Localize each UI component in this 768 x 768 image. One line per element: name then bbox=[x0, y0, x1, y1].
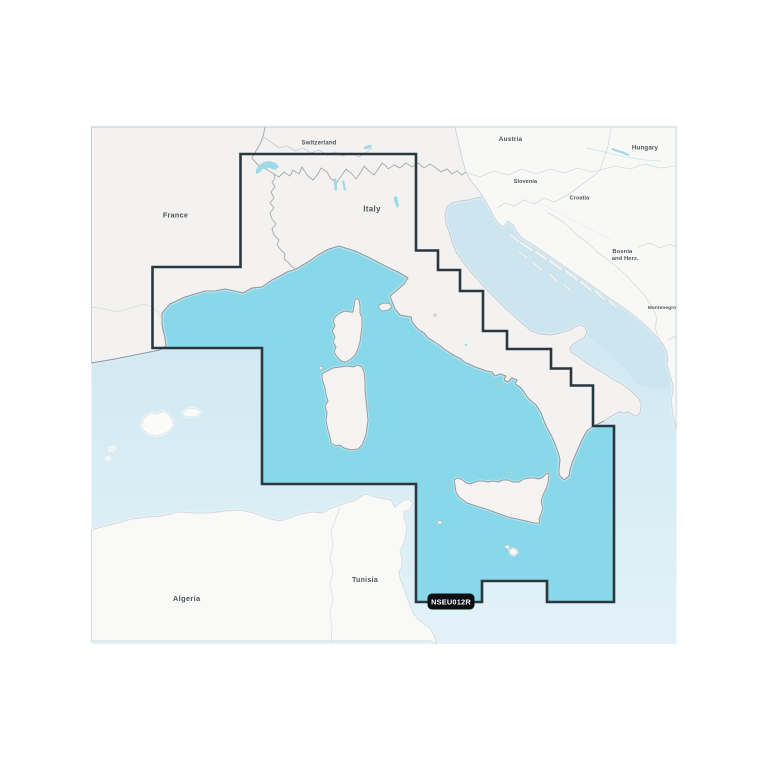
svg-text:Slovenia: Slovenia bbox=[514, 179, 538, 185]
svg-text:NSEU012R: NSEU012R bbox=[431, 597, 471, 606]
svg-text:Austria: Austria bbox=[499, 136, 523, 143]
svg-text:Bosnia: Bosnia bbox=[612, 249, 633, 255]
svg-text:France: France bbox=[163, 211, 188, 220]
svg-text:Switzerland: Switzerland bbox=[302, 140, 337, 146]
svg-text:Hungary: Hungary bbox=[632, 145, 659, 152]
svg-text:Montenegro: Montenegro bbox=[648, 305, 676, 311]
svg-text:and Herz.: and Herz. bbox=[612, 256, 639, 262]
svg-text:Algeria: Algeria bbox=[173, 594, 201, 603]
svg-text:Italy: Italy bbox=[363, 205, 381, 214]
svg-text:Tunisia: Tunisia bbox=[352, 577, 378, 584]
svg-text:Croatia: Croatia bbox=[570, 196, 590, 202]
